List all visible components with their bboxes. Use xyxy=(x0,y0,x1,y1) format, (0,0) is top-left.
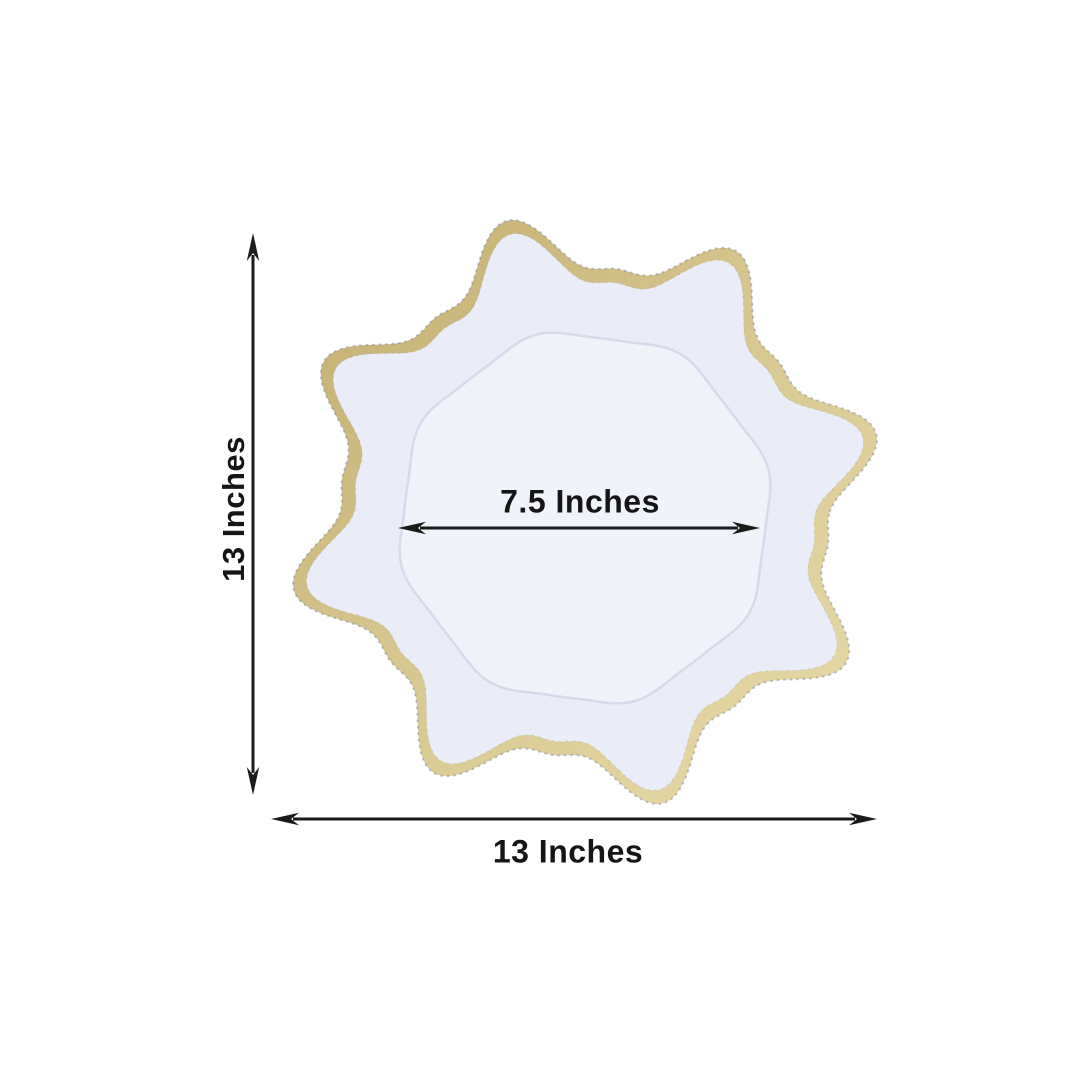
width-dimension-label: 13 Inches xyxy=(493,834,643,871)
width-dimension-arrow xyxy=(271,813,877,825)
product-dimension-diagram: 13 Inches 7.5 Inches 13 Inches xyxy=(0,0,1072,1072)
plate-dimension-graphic xyxy=(0,0,1072,1072)
height-dimension-label: 13 Inches xyxy=(216,436,252,582)
well-diameter-label: 7.5 Inches xyxy=(500,484,660,521)
